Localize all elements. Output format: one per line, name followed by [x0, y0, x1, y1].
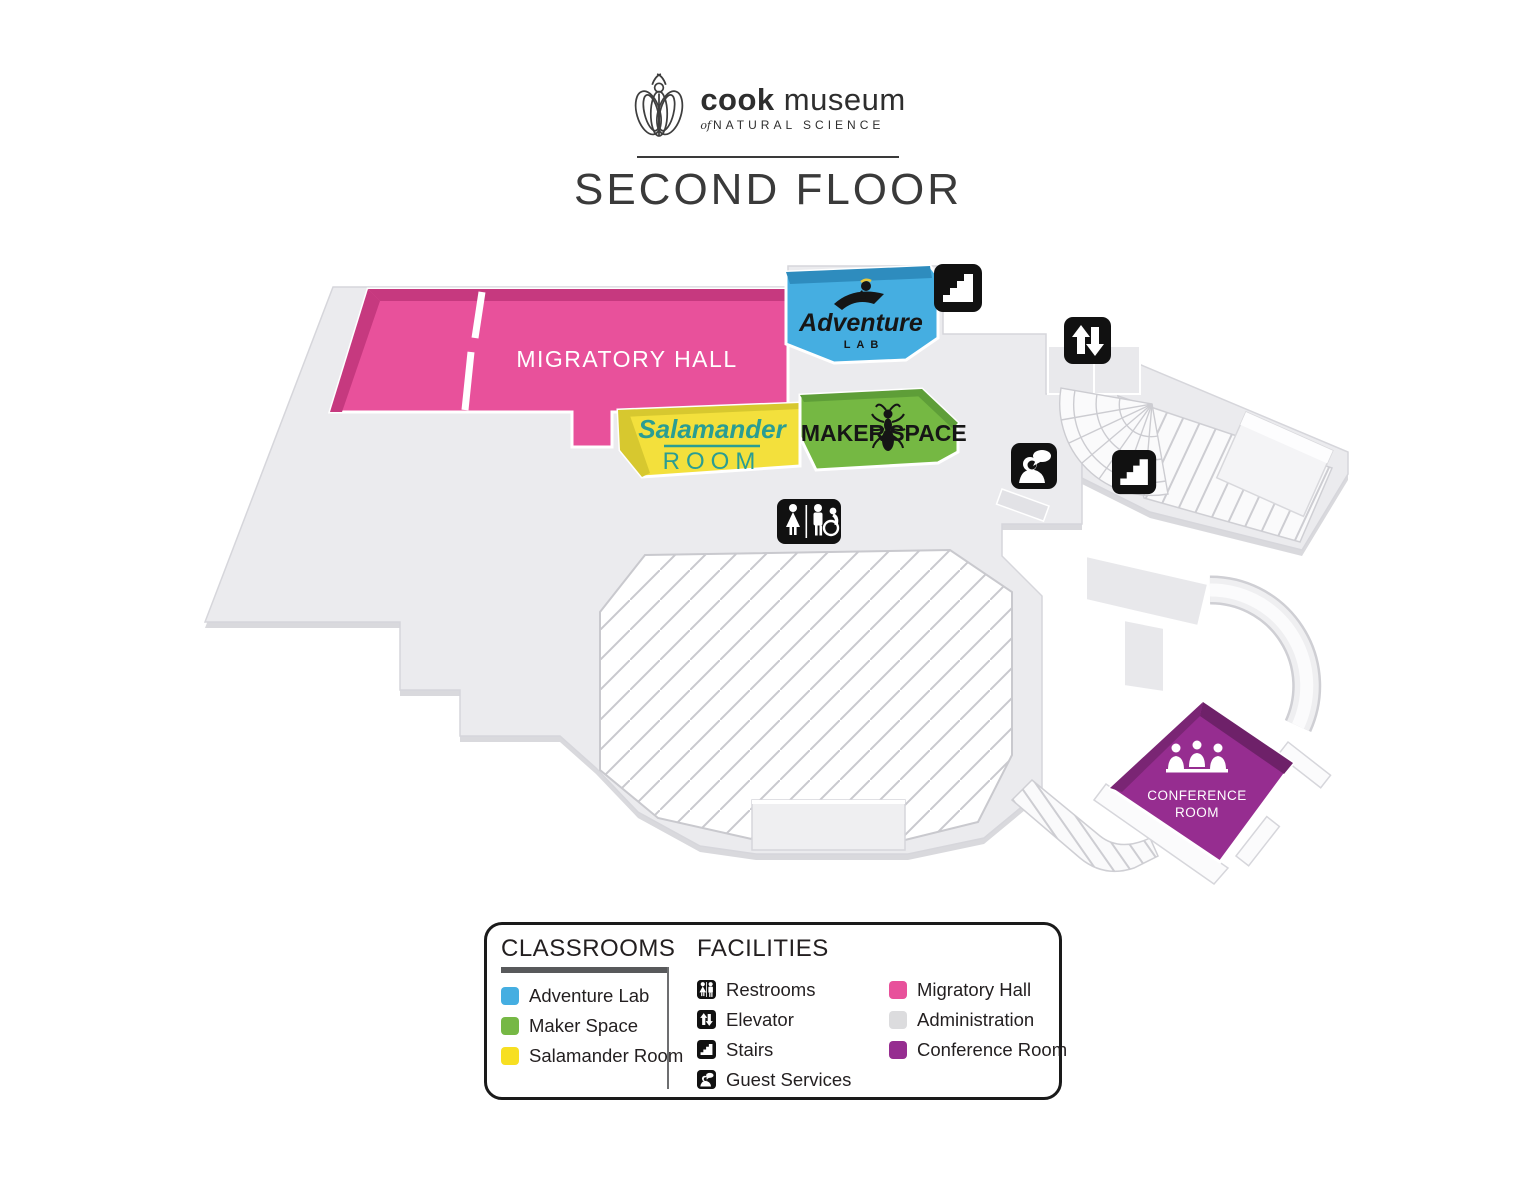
elevator-icon: [697, 1010, 716, 1029]
color-swatch: [889, 981, 907, 999]
legend: CLASSROOMS Adventure Lab Maker Space Sal…: [484, 922, 1062, 1100]
maker-space-word-left: MAKER: [801, 420, 886, 446]
corridor-block: [1124, 620, 1164, 692]
legend-classrooms-title: CLASSROOMS: [501, 935, 683, 964]
restrooms-icon: [697, 980, 716, 999]
atrium-landing: [752, 800, 905, 850]
salamander-room-sublabel: ROOM: [663, 448, 762, 475]
legend-item-migratory-hall: Migratory Hall: [889, 975, 1067, 1005]
color-swatch: [501, 987, 519, 1005]
legend-item-restrooms: Restrooms: [697, 975, 889, 1005]
room-adventure-lab: Adventure LAB: [786, 266, 938, 363]
stairs-icon: [697, 1040, 716, 1059]
adventure-lab-sublabel: LAB: [844, 339, 885, 351]
maker-space-word-right: SPACE: [889, 420, 967, 446]
legend-item-maker-space: Maker Space: [501, 1011, 683, 1041]
legend-classrooms: CLASSROOMS Adventure Lab Maker Space Sal…: [501, 935, 683, 1087]
guest-services-icon: [697, 1070, 716, 1089]
color-swatch: [501, 1017, 519, 1035]
stairs-icon: [934, 264, 982, 312]
color-swatch: [501, 1047, 519, 1065]
restrooms-icon: [777, 499, 841, 544]
stairs-icon: [1112, 450, 1156, 494]
curved-corridor: [1210, 590, 1307, 726]
color-swatch: [889, 1041, 907, 1059]
legend-facility-icons: Restrooms Elevator: [697, 975, 889, 1095]
legend-divider: [667, 967, 669, 1089]
elevator-icon: [1064, 317, 1111, 364]
guest-services-icon: [1011, 443, 1057, 489]
legend-item-stairs: Stairs: [697, 1035, 889, 1065]
legend-item-salamander-room: Salamander Room: [501, 1041, 683, 1071]
legend-facilities-title: FACILITIES: [697, 935, 1067, 964]
legend-item-administration: Administration: [889, 1005, 1067, 1035]
legend-item-elevator: Elevator: [697, 1005, 889, 1035]
migratory-hall-label: MIGRATORY HALL: [516, 346, 737, 372]
legend-facility-colors: Migratory Hall Administration Conference…: [889, 975, 1067, 1095]
adventure-lab-label: Adventure: [798, 309, 923, 337]
color-swatch: [889, 1011, 907, 1029]
room-salamander: Salamander ROOM: [618, 403, 800, 477]
corridor-block: [1086, 556, 1208, 626]
legend-item-guest-services: Guest Services: [697, 1065, 889, 1095]
salamander-room-label: Salamander: [638, 414, 787, 444]
legend-classrooms-bar: [501, 967, 669, 973]
floor-map-page: cook museum ofNATURAL SCIENCE SECOND FLO…: [0, 0, 1536, 1187]
conference-room-label-2: ROOM: [1175, 805, 1219, 820]
legend-item-adventure-lab: Adventure Lab: [501, 981, 683, 1011]
legend-facilities: FACILITIES: [697, 935, 1067, 1087]
atrium-open-area: [600, 550, 1012, 850]
legend-item-conference-room: Conference Room: [889, 1035, 1067, 1065]
conference-room-label-1: CONFERENCE: [1147, 788, 1247, 803]
